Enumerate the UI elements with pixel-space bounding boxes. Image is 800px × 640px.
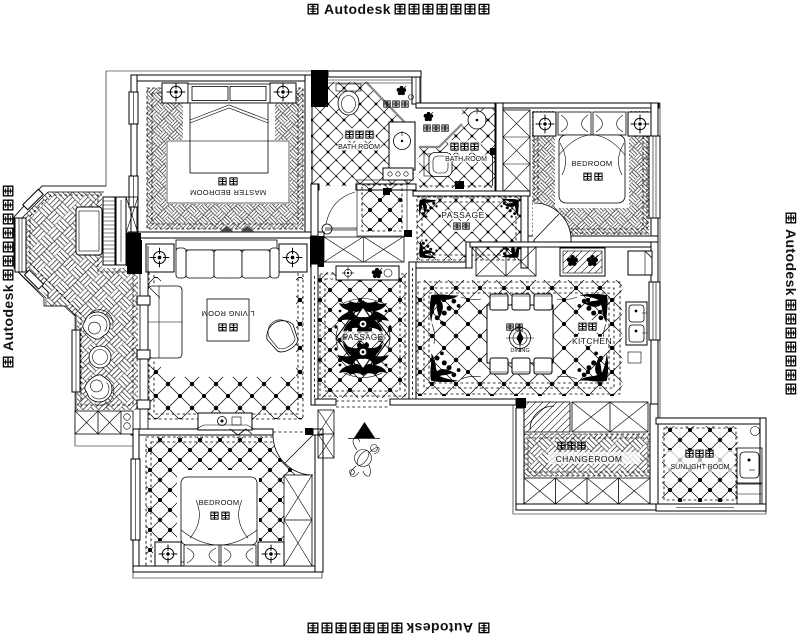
- svg-text:PASSAGE: PASSAGE: [441, 210, 485, 220]
- svg-text:BEDROOM: BEDROOM: [572, 159, 613, 168]
- svg-text:Autodesk: Autodesk: [783, 229, 799, 296]
- svg-text:Autodesk: Autodesk: [0, 284, 16, 351]
- svg-text:SUNLIGHT ROOM: SUNLIGHT ROOM: [671, 464, 730, 471]
- svg-text:KITCHEN: KITCHEN: [572, 336, 612, 346]
- svg-text:PASSAGE: PASSAGE: [343, 333, 383, 342]
- svg-text:MASTER BEDROOM: MASTER BEDROOM: [190, 188, 266, 197]
- svg-text:DINING: DINING: [510, 348, 529, 354]
- svg-text:LIVING ROOM: LIVING ROOM: [201, 309, 254, 318]
- svg-text:BATH ROOM: BATH ROOM: [338, 144, 380, 151]
- svg-text:BATH ROOM: BATH ROOM: [445, 156, 487, 163]
- svg-text:CHANGEROOM: CHANGEROOM: [556, 454, 623, 464]
- svg-text:Autodesk: Autodesk: [406, 620, 473, 636]
- svg-text:BEDROOM: BEDROOM: [199, 498, 240, 507]
- svg-text:Autodesk: Autodesk: [324, 1, 391, 17]
